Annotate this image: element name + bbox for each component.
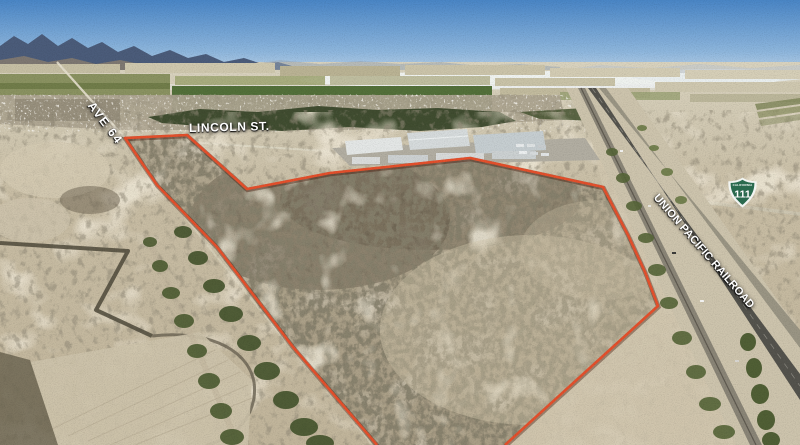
aerial-photo: AVE 64 LINCOLN ST. UNION PACIFIC RAILROA… <box>0 0 800 445</box>
shield-route-number: 111 <box>734 190 750 201</box>
route-111-shield: CALIFORNIA 111 <box>726 177 759 208</box>
shield-state-label: CALIFORNIA <box>733 183 753 187</box>
lincoln-st-label: LINCOLN ST. <box>189 119 270 135</box>
